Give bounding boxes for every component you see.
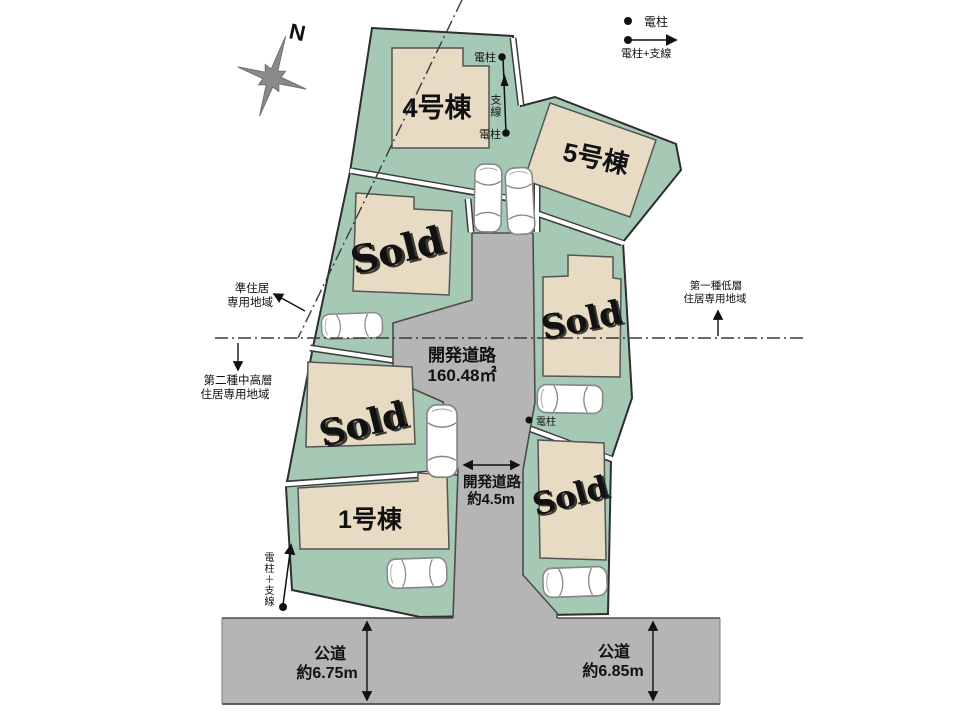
lot-layout-diagram: N 電柱 電柱+支線 4号棟 5号棟 1号棟 Sold Sold Sold So… <box>0 0 960 720</box>
zoning-quasi-line2: 専用地域 <box>227 296 273 309</box>
dev-road-area: 160.48㎡ <box>428 365 497 385</box>
unit4-label: 4号棟 <box>402 93 472 123</box>
map-legend: 電柱 電柱+支線 <box>621 14 676 60</box>
pole-wire-vertical-label: 電柱＋支線 <box>262 552 272 607</box>
site-plan-canvas: N 電柱 電柱+支線 4号棟 5号棟 1号棟 Sold Sold Sold So… <box>0 0 960 720</box>
wire-vertical-label: 支線 <box>489 94 500 118</box>
car-icon <box>474 164 502 232</box>
compass-north-label: N <box>287 18 308 46</box>
car-icon <box>543 566 608 597</box>
dev-road-name: 開発道路 <box>428 345 497 365</box>
car-icon <box>537 384 603 413</box>
car-icon <box>427 405 457 477</box>
public-road <box>222 618 720 704</box>
compass-rose: N <box>238 18 308 116</box>
public-road-left-name: 公道 <box>314 644 346 663</box>
zoning-midhigh-line1: 第二種中高層 <box>204 373 273 387</box>
pole-legend-dot <box>624 17 632 25</box>
dev-road-width-name: 開発道路 <box>463 473 521 491</box>
pole-lower-label: 電柱 <box>479 127 501 141</box>
unit1-label: 1号棟 <box>338 506 403 534</box>
zoning-lowrise-line1: 第一種低層 <box>690 279 743 292</box>
public-road-left-width: 約6.75m <box>296 663 357 682</box>
car-icon <box>387 557 448 588</box>
pole-upper-label: 電柱 <box>474 50 496 64</box>
pole-mid-label: 電柱 <box>536 415 556 428</box>
public-road-right-name: 公道 <box>598 642 630 661</box>
car-icon <box>505 167 535 235</box>
zoning-midhigh-line2: 住居専用地域 <box>201 387 270 401</box>
pole-dot <box>498 53 506 61</box>
pole-dot <box>526 417 533 424</box>
zoning-quasi-line1: 準住居 <box>235 281 270 295</box>
dev-road-width-value: 約4.5m <box>467 490 515 508</box>
car-icon <box>321 312 383 339</box>
public-road-right-width: 約6.85m <box>582 661 643 680</box>
pole-legend-label: 電柱 <box>644 14 668 29</box>
zoning-lowrise-line2: 住居専用地域 <box>684 292 747 305</box>
pole-dot <box>502 129 510 137</box>
pole-wire-legend-label: 電柱+支線 <box>621 46 671 60</box>
